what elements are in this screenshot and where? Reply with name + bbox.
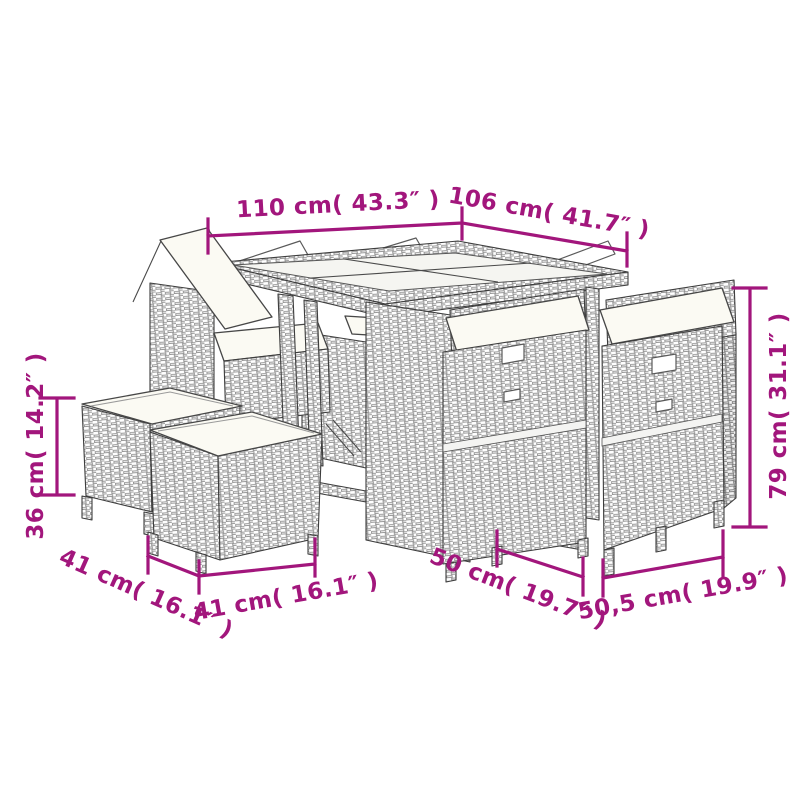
- stool-front: [148, 412, 322, 574]
- dim-stool-height-label: 36 cm( 14.2″ ): [23, 352, 49, 539]
- furniture-set: [82, 228, 736, 582]
- chair-right-inner-strap-detail-2: [504, 389, 520, 402]
- chair-right-outer: [600, 280, 736, 576]
- dim-table-depth-label: 106 cm( 41.7″ ): [446, 183, 651, 244]
- dim-stool-depth-label: 41 cm( 16.1″ ): [55, 544, 237, 644]
- dimension-diagram-canvas: 110 cm( 43.3″ ) 106 cm( 41.7″ ) 79 cm( 3…: [0, 0, 800, 800]
- dim-chair-height: 79 cm( 31.1″ ): [733, 288, 792, 527]
- chair-right-inner-strap-detail-1: [502, 344, 524, 364]
- dim-stool-width-label: 41 cm( 16.1″ ): [192, 568, 381, 626]
- dim-table-width: 110 cm( 43.3″ ): [208, 187, 462, 253]
- dim-chair-height-line: [733, 288, 766, 527]
- dim-stool-height: 36 cm( 14.2″ ): [23, 352, 74, 539]
- chair-right-outer-strap-detail-2: [656, 399, 672, 412]
- chair-right-inner: [443, 289, 589, 582]
- table-right-leg: [586, 287, 599, 520]
- dim-table-width-label: 110 cm( 43.3″ ): [236, 187, 441, 224]
- furniture-dimension-diagram: 110 cm( 43.3″ ) 106 cm( 41.7″ ) 79 cm( 3…: [0, 0, 800, 800]
- stool-rear-left-face: [82, 406, 152, 512]
- dim-chair-height-label: 79 cm( 31.1″ ): [766, 312, 792, 499]
- chair-right-outer-strap-detail-1: [652, 354, 676, 374]
